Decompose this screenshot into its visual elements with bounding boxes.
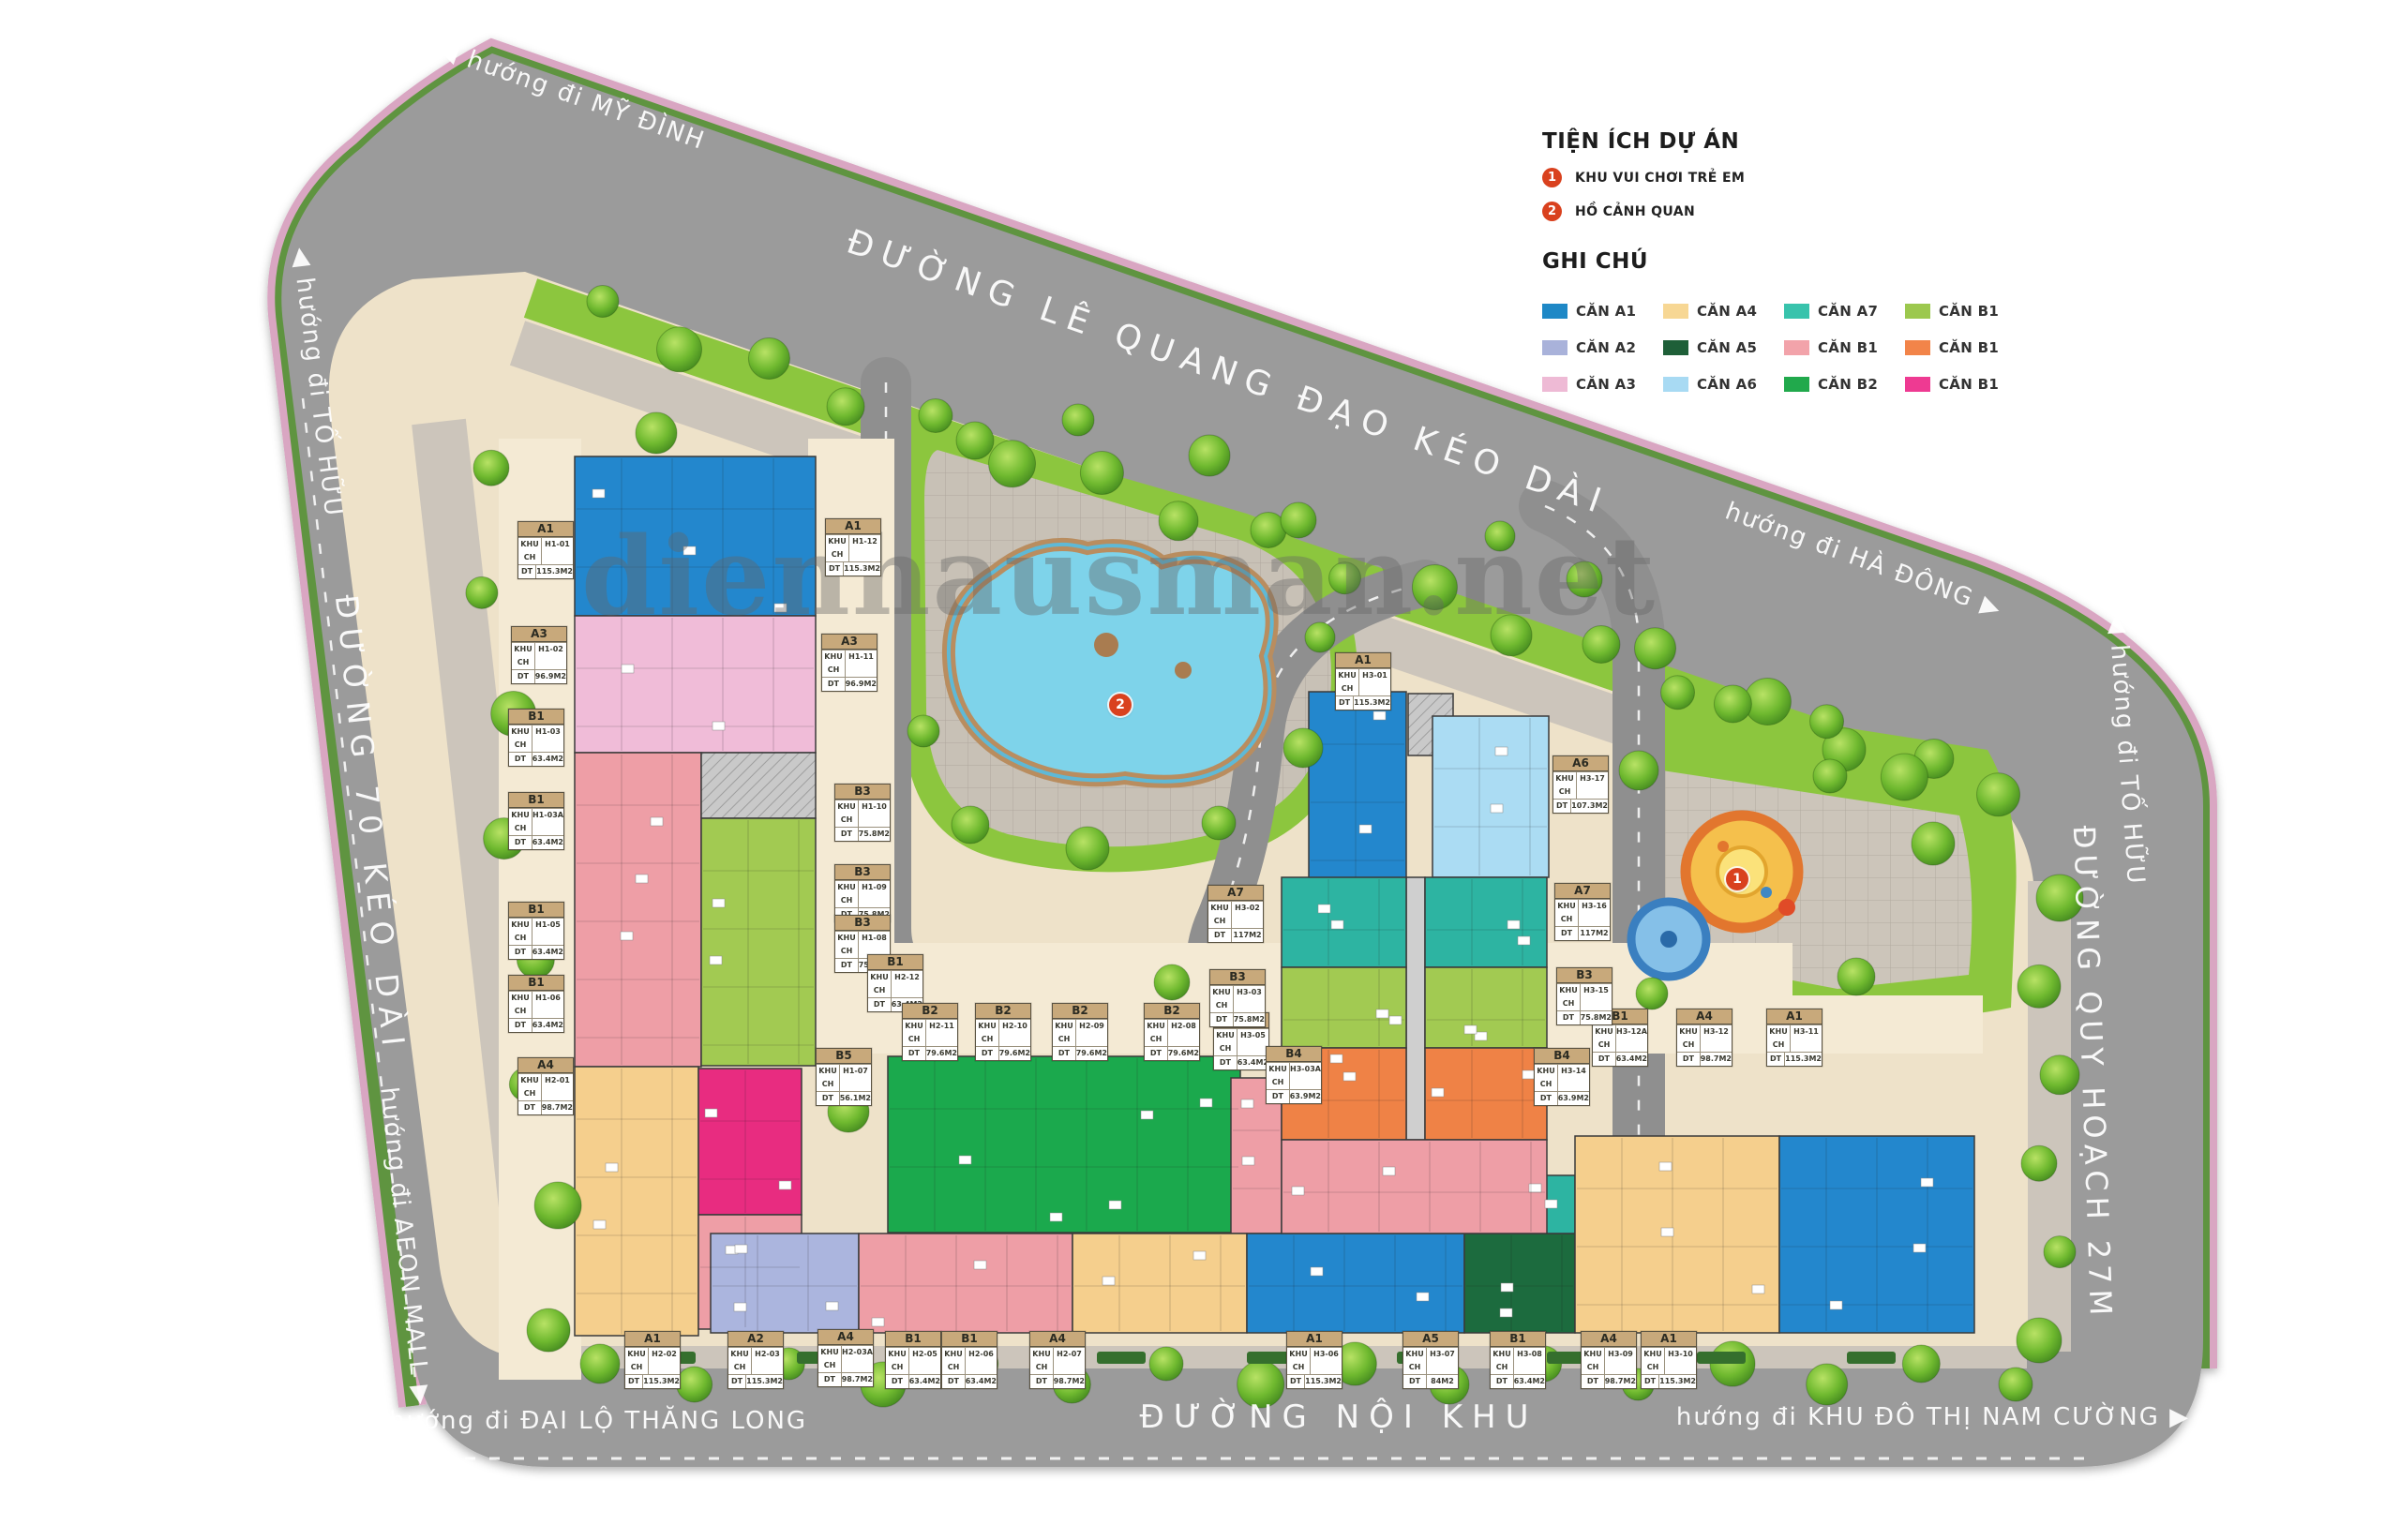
building-block-a6[interactable]: [1432, 716, 1549, 877]
unit-plate-dt-label: DT: [818, 1373, 842, 1386]
furniture-mark: [606, 1163, 618, 1172]
furniture-mark: [1501, 1283, 1513, 1292]
furniture-mark: [705, 1109, 717, 1117]
unit-plate-type: B2: [1145, 1004, 1199, 1019]
unit-plate-khu-label: KHU CH: [1555, 900, 1579, 926]
unit-plate-khu-value: H2-12: [892, 971, 922, 997]
furniture-mark: [826, 1302, 838, 1310]
building-block-a4[interactable]: [1575, 1136, 1779, 1333]
unit-plate-dt-label: DT: [1535, 1092, 1558, 1105]
unit-plate-khu-label: KHU CH: [1642, 1348, 1665, 1374]
direction-nam-cuong: hướng đi KHU ĐÔ THỊ NAM CƯỜNG ▶: [1676, 1403, 2190, 1431]
unit-plate-dt-label: DT: [822, 678, 846, 691]
unit-plate-khu-label: KHU CH: [1336, 669, 1359, 695]
unit-plate-type: B4: [1535, 1049, 1589, 1064]
unit-plate-dt-label: DT: [826, 562, 844, 576]
unit-plate-dt-label: DT: [1642, 1375, 1659, 1388]
unit-plate[interactable]: B2 KHU CHH2-11 DT79.6M2: [902, 1003, 958, 1061]
tree-icon: [919, 398, 952, 432]
unit-type-label: CĂN A6: [1697, 376, 1757, 393]
unit-plate-khu-value: H3-03: [1234, 986, 1265, 1012]
legend-unit-item: CĂN A4: [1663, 303, 1784, 320]
unit-plate-khu-value: H1-01: [542, 538, 573, 564]
unit-plate[interactable]: B2 KHU CHH2-09 DT79.6M2: [1052, 1003, 1108, 1061]
unit-plate[interactable]: A4 KHU CHH3-12 DT98.7M2: [1676, 1009, 1732, 1067]
unit-plate[interactable]: B3 KHU CHH1-09 DT75.8M2: [834, 864, 891, 922]
unit-color-swatch: [1663, 377, 1688, 392]
legend-unit-item: CĂN B1: [1905, 303, 2026, 320]
furniture-mark: [1921, 1178, 1933, 1187]
tree-icon: [636, 412, 677, 454]
direction-dai-lo-thang-long: ◀ hướng đi ĐẠI LỘ THĂNG LONG: [359, 1407, 807, 1435]
furniture-mark: [1376, 1009, 1388, 1018]
furniture-mark: [1200, 1099, 1212, 1107]
unit-plate-type: B1: [942, 1332, 997, 1347]
unit-plate-type: A1: [1336, 653, 1390, 668]
unit-plate-type: A3: [822, 635, 877, 650]
unit-plate-dt-value: 63.4M2: [532, 836, 563, 849]
unit-plate-type: B1: [1491, 1332, 1545, 1347]
unit-plate-dt-label: DT: [1145, 1047, 1168, 1060]
unit-plate-khu-label: KHU CH: [903, 1020, 926, 1046]
unit-plate-type: A4: [818, 1330, 873, 1345]
tree-icon: [1813, 759, 1847, 793]
unit-type-label: CĂN B1: [1939, 376, 1999, 393]
unit-plate-khu-value: H3-11: [1791, 1025, 1822, 1052]
building-block-b1[interactable]: [1282, 1140, 1547, 1233]
unit-plate[interactable]: A7 KHU CHH3-16 DT117M2: [1554, 883, 1611, 941]
unit-plate-dt-value: 63.4M2: [532, 753, 563, 766]
unit-plate-dt-label: DT: [509, 1019, 532, 1032]
tree-icon: [2021, 1145, 2057, 1181]
tree-icon: [1619, 751, 1658, 790]
unit-plate-khu-label: KHU CH: [518, 1074, 542, 1100]
tree-icon: [580, 1344, 620, 1383]
unit-plate-khu-label: KHU CH: [512, 643, 535, 669]
unit-plate-dt-label: DT: [1336, 696, 1354, 710]
tree-icon: [2017, 964, 2061, 1008]
unit-plate-khu-value: H3-14: [1558, 1065, 1589, 1091]
furniture-mark: [1383, 1167, 1395, 1175]
unit-plate-type: A4: [1582, 1332, 1636, 1347]
unit-plate[interactable]: A5 KHU CHH3-07 DT84M2: [1402, 1331, 1459, 1389]
unit-plate-dt-value: 63.4M2: [1237, 1056, 1268, 1069]
unit-color-swatch: [1663, 340, 1688, 355]
unit-plate[interactable]: A2 KHU CHH2-03 DT115.3M2: [727, 1331, 784, 1389]
tree-icon: [534, 1182, 581, 1229]
building-block-a1[interactable]: [1309, 692, 1406, 879]
unit-color-swatch: [1542, 377, 1567, 392]
furniture-mark: [1432, 1088, 1444, 1097]
unit-plate-dt-value: 98.7M2: [842, 1373, 873, 1386]
tree-icon: [1807, 1364, 1848, 1405]
unit-plate-type: A4: [1030, 1332, 1085, 1347]
tree-icon: [1714, 685, 1751, 723]
building-block-b3[interactable]: [1282, 967, 1406, 1048]
unit-plate-khu-value: H3-02: [1232, 902, 1263, 928]
unit-plate-dt-value: 63.4M2: [532, 1019, 563, 1032]
unit-plate-khu-value: H3-15: [1581, 984, 1612, 1010]
unit-plate-khu-label: KHU CH: [518, 538, 542, 564]
unit-plate-dt-value: 115.3M2: [1659, 1375, 1696, 1388]
furniture-mark: [1659, 1162, 1672, 1171]
legend-unit-item: CĂN A3: [1542, 376, 1663, 393]
tree-icon: [956, 422, 994, 459]
unit-plate[interactable]: A7 KHU CHH3-02 DT117M2: [1207, 885, 1264, 943]
legend-amenity-item: 1 KHU VUI CHƠI TRẺ EM: [1542, 168, 2026, 187]
unit-plate-type: A7: [1208, 886, 1263, 901]
legend-amenities: 1 KHU VUI CHƠI TRẺ EM 2 HỒ CẢNH QUAN: [1542, 168, 2026, 221]
furniture-mark: [651, 817, 663, 826]
unit-plate-dt-value: 115.3M2: [1785, 1053, 1822, 1066]
tree-icon: [587, 285, 619, 317]
unit-plate-khu-value: H2-05: [909, 1348, 940, 1374]
legend-amenity-item: 2 HỒ CẢNH QUAN: [1542, 202, 2026, 221]
unit-color-swatch: [1542, 340, 1567, 355]
unit-plate[interactable]: B2 KHU CHH2-10 DT79.6M2: [975, 1003, 1031, 1061]
unit-plate-khu-label: KHU CH: [1214, 1029, 1237, 1055]
unit-plate-khu-value: H3-12: [1701, 1025, 1732, 1052]
unit-plate[interactable]: B1 KHU CHH3-08 DT63.4M2: [1490, 1331, 1546, 1389]
building-block-a1[interactable]: [1247, 1233, 1464, 1333]
unit-plate-khu-value: H1-03: [532, 725, 563, 752]
unit-plate-dt-value: 63.4M2: [909, 1375, 940, 1388]
tree-icon: [1977, 773, 2020, 816]
unit-plate-dt-label: DT: [868, 998, 892, 1011]
unit-plate-dt-label: DT: [509, 836, 532, 849]
hedge: [1847, 1352, 1896, 1364]
tree-icon: [827, 388, 864, 426]
unit-plate[interactable]: A4 KHU CHH2-03A DT98.7M2: [817, 1329, 874, 1387]
unit-plate-dt-label: DT: [1030, 1375, 1054, 1388]
unit-plate-khu-label: KHU CH: [509, 725, 532, 752]
unit-plate[interactable]: A1 KHU CHH3-10 DT115.3M2: [1641, 1331, 1697, 1389]
unit-plate-khu-label: KHU CH: [835, 800, 859, 827]
unit-plate-khu-label: KHU CH: [1267, 1063, 1290, 1089]
unit-plate-khu-label: KHU CH: [1210, 986, 1234, 1012]
unit-plate-khu-value: H1-03A: [532, 809, 563, 835]
unit-plate-khu-value: H2-09: [1076, 1020, 1107, 1046]
unit-plate-khu-label: KHU CH: [1582, 1348, 1605, 1374]
unit-plate-khu-value: H2-11: [926, 1020, 957, 1046]
legend-unit-item: CĂN A2: [1542, 339, 1663, 356]
unit-plate-dt-value: 115.3M2: [536, 565, 573, 578]
unit-plate[interactable]: B1 KHU CHH1-06 DT63.4M2: [508, 975, 564, 1033]
unit-plate-dt-label: DT: [835, 828, 859, 841]
furniture-mark: [712, 722, 725, 730]
unit-plate[interactable]: A3 KHU CHH1-02 DT96.9M2: [511, 626, 567, 684]
unit-plate-dt-value: 98.7M2: [1605, 1375, 1636, 1388]
furniture-mark: [1661, 1228, 1673, 1236]
unit-plate-dt-value: 96.9M2: [535, 670, 566, 683]
legend-unit-item: CĂN A5: [1663, 339, 1784, 356]
unit-color-swatch: [1784, 340, 1809, 355]
unit-plate[interactable]: B3 KHU CHH3-03 DT75.8M2: [1209, 969, 1266, 1027]
unit-plate-type: A5: [1403, 1332, 1458, 1347]
unit-plate[interactable]: A1 KHU CHH1-01 DT115.3M2: [517, 521, 574, 579]
unit-plate-khu-label: KHU CH: [826, 535, 849, 561]
tree-icon: [1636, 978, 1668, 1009]
unit-plate-khu-label: KHU CH: [886, 1348, 909, 1374]
unit-plate-khu-value: H3-05: [1237, 1029, 1268, 1055]
legend-unit-item: CĂN B1: [1905, 376, 2026, 393]
unit-plate-khu-label: KHU CH: [1491, 1348, 1514, 1374]
unit-plate-dt-value: 115.3M2: [1305, 1375, 1342, 1388]
unit-plate-khu-value: H1-07: [840, 1065, 871, 1091]
furniture-mark: [712, 899, 725, 907]
unit-plate-type: A1: [1642, 1332, 1696, 1347]
unit-plate-dt-value: 98.7M2: [1701, 1053, 1732, 1066]
unit-plate[interactable]: A4 KHU CHH2-01 DT98.7M2: [517, 1057, 574, 1115]
unit-plate[interactable]: A1 KHU CHH3-11 DT115.3M2: [1766, 1009, 1822, 1067]
unit-plate-dt-label: DT: [1553, 800, 1571, 813]
unit-color-swatch: [1905, 304, 1930, 319]
unit-plate-khu-value: H2-06: [966, 1348, 997, 1374]
furniture-mark: [622, 665, 634, 673]
furniture-mark: [710, 956, 722, 964]
unit-plate-khu-value: H1-11: [846, 650, 877, 677]
unit-plate-dt-value: 98.7M2: [1054, 1375, 1085, 1388]
unit-plate-dt-value: 79.6M2: [926, 1047, 957, 1060]
tree-icon: [1154, 964, 1190, 1000]
unit-plate-type: A6: [1553, 756, 1608, 771]
furniture-mark: [734, 1303, 746, 1311]
tree-icon: [952, 806, 989, 844]
unit-plate-khu-value: H3-07: [1427, 1348, 1458, 1374]
furniture-mark: [1518, 936, 1530, 945]
unit-plate-type: B1: [509, 710, 563, 725]
unit-plate-dt-label: DT: [728, 1375, 746, 1388]
unit-plate-dt-label: DT: [625, 1375, 643, 1388]
unit-type-label: CĂN A3: [1576, 376, 1636, 393]
tree-icon: [657, 327, 702, 372]
tree-icon: [1080, 451, 1123, 494]
unit-plate-type: A3: [512, 627, 566, 642]
unit-plate-type: B5: [817, 1049, 871, 1064]
unit-type-label: CĂN A1: [1576, 303, 1636, 320]
furniture-mark: [636, 875, 648, 883]
unit-plate-khu-value: H1-05: [532, 919, 563, 945]
furniture-mark: [1389, 1016, 1402, 1024]
unit-plate[interactable]: A1 KHU CHH2-02 DT115.3M2: [624, 1331, 681, 1389]
unit-plate-dt-value: 117M2: [1232, 929, 1263, 942]
unit-plate[interactable]: A4 KHU CHH2-07 DT98.7M2: [1029, 1331, 1086, 1389]
tree-icon: [466, 576, 498, 608]
unit-plate-type: B1: [509, 793, 563, 808]
unit-plate[interactable]: A3 KHU CHH1-11 DT96.9M2: [821, 634, 877, 692]
furniture-mark: [1464, 1025, 1477, 1034]
amenity-number-badge: 1: [1542, 168, 1562, 187]
unit-plate[interactable]: B2 KHU CHH2-08 DT79.6M2: [1144, 1003, 1200, 1061]
unit-plate-type: B1: [509, 903, 563, 918]
unit-plate[interactable]: A1 KHU CHH3-01 DT115.3M2: [1335, 652, 1391, 710]
amenity-marker[interactable]: 1: [1726, 868, 1748, 890]
unit-plate[interactable]: B1 KHU CHH2-06 DT63.4M2: [941, 1331, 997, 1389]
unit-plate-dt-value: 63.4M2: [966, 1375, 997, 1388]
building-block-b1[interactable]: [575, 753, 701, 1067]
unit-plate-khu-label: KHU CH: [1677, 1025, 1701, 1052]
unit-plate-khu-value: H3-06: [1311, 1348, 1342, 1374]
unit-plate[interactable]: B5 KHU CHH1-07 DT56.1M2: [816, 1048, 872, 1106]
unit-plate[interactable]: A1 KHU CHH1-12 DT115.3M2: [825, 518, 881, 576]
unit-plate-khu-value: H1-10: [859, 800, 890, 827]
tree-icon: [1062, 404, 1094, 436]
legend-unit-item: CĂN A7: [1784, 303, 1905, 320]
furniture-mark: [1141, 1111, 1153, 1119]
amenity-label: KHU VUI CHƠI TRẺ EM: [1575, 171, 1745, 186]
unit-type-label: CĂN A4: [1697, 303, 1757, 320]
tree-icon: [1837, 958, 1875, 995]
unit-plate-dt-value: 63.4M2: [1616, 1053, 1647, 1066]
unit-plate-type: B2: [976, 1004, 1030, 1019]
hedge: [1697, 1352, 1746, 1364]
unit-plate-type: B2: [903, 1004, 957, 1019]
unit-plate-dt-value: 115.3M2: [746, 1375, 783, 1388]
master-plan-canvas: dienhausman.net ĐƯỜNG LÊ QUANG ĐẠO KÉO D…: [0, 0, 2400, 1540]
unit-plate-dt-label: DT: [1593, 1053, 1616, 1066]
unit-plate-khu-label: KHU CH: [1535, 1065, 1558, 1091]
unit-plate-khu-label: KHU CH: [1767, 1025, 1791, 1052]
unit-plate[interactable]: B1 KHU CHH1-03 DT63.4M2: [508, 709, 564, 767]
unit-plate-dt-label: DT: [518, 565, 536, 578]
unit-plate-dt-value: 98.7M2: [542, 1101, 573, 1114]
unit-plate-dt-label: DT: [509, 753, 532, 766]
unit-plate-type: A1: [1767, 1009, 1822, 1024]
unit-plate-dt-label: DT: [1208, 929, 1232, 942]
lake-island: [1175, 662, 1192, 679]
tree-icon: [473, 450, 509, 486]
unit-plate-dt-label: DT: [1287, 1375, 1305, 1388]
tree-icon: [1202, 806, 1236, 840]
unit-plate[interactable]: A6 KHU CHH3-17 DT107.3M2: [1552, 755, 1609, 814]
furniture-mark: [1495, 747, 1507, 755]
unit-plate[interactable]: B1 KHU CHH1-05 DT63.4M2: [508, 902, 564, 960]
tree-icon: [1661, 676, 1695, 710]
unit-plate[interactable]: B3 KHU CHH1-10 DT75.8M2: [834, 784, 891, 842]
unit-plate-khu-value: H3-10: [1665, 1348, 1696, 1374]
building-block-b5[interactable]: [698, 1069, 802, 1215]
unit-plate-dt-value: 115.3M2: [844, 562, 880, 576]
unit-plate-dt-value: 107.3M2: [1571, 800, 1608, 813]
unit-plate-khu-label: KHU CH: [1553, 772, 1577, 799]
building-block-a5[interactable]: [1464, 1233, 1575, 1333]
unit-plate-type: B3: [835, 916, 890, 931]
furniture-mark: [1545, 1200, 1557, 1208]
unit-plate-type: A1: [1287, 1332, 1342, 1347]
building-block-a7[interactable]: [1282, 877, 1406, 967]
furniture-mark: [1830, 1301, 1842, 1309]
building-block-a4[interactable]: [575, 1067, 698, 1336]
furniture-mark: [1050, 1213, 1062, 1221]
unit-type-label: CĂN A7: [1818, 303, 1878, 320]
unit-plate-type: A4: [518, 1058, 573, 1073]
building-block-b1[interactable]: [859, 1233, 1072, 1333]
unit-plate-dt-label: DT: [1267, 1090, 1290, 1103]
unit-plate-khu-label: KHU CH: [822, 650, 846, 677]
amenity-number-badge: 2: [1542, 202, 1562, 221]
unit-plate-dt-label: DT: [509, 946, 532, 959]
unit-plate-type: B3: [1557, 968, 1612, 983]
unit-plate-khu-value: H1-02: [535, 643, 566, 669]
furniture-mark: [1102, 1277, 1115, 1285]
furniture-mark: [1292, 1187, 1304, 1195]
furniture-mark: [1318, 905, 1330, 913]
unit-plate-dt-label: DT: [1210, 1013, 1234, 1026]
unit-plate-dt-label: DT: [1214, 1056, 1237, 1069]
unit-type-label: CĂN B2: [1818, 376, 1878, 393]
unit-plate-type: A1: [625, 1332, 680, 1347]
unit-type-label: CĂN B1: [1818, 339, 1878, 356]
unit-plate[interactable]: B1 KHU CHH1-03A DT63.4M2: [508, 792, 564, 850]
unit-type-label: CĂN A2: [1576, 339, 1636, 356]
unit-plate-dt-label: DT: [886, 1375, 909, 1388]
unit-plate-type: B1: [509, 976, 563, 991]
unit-plate-dt-label: DT: [1767, 1053, 1785, 1066]
unit-plate[interactable]: B4 KHU CHH3-03A DT63.9M2: [1266, 1046, 1322, 1104]
unit-plate-dt-value: 63.4M2: [532, 946, 563, 959]
tree-icon: [1912, 822, 1955, 865]
unit-plate-dt-value: 56.1M2: [840, 1092, 871, 1105]
unit-plate-dt-label: DT: [1403, 1375, 1427, 1388]
furniture-mark: [1491, 804, 1503, 813]
unit-plate-dt-value: 115.3M2: [1354, 696, 1390, 710]
unit-plate-khu-label: KHU CH: [509, 992, 532, 1018]
legend-unit-item: CĂN B1: [1784, 339, 1905, 356]
unit-plate-type: B2: [1053, 1004, 1107, 1019]
unit-plate-khu-label: KHU CH: [625, 1348, 649, 1374]
unit-plate-dt-value: 75.8M2: [1234, 1013, 1265, 1026]
furniture-mark: [1417, 1293, 1429, 1301]
unit-plate-dt-value: 63.9M2: [1290, 1090, 1321, 1103]
tree-icon: [748, 337, 789, 379]
furniture-mark: [1241, 1099, 1253, 1108]
tree-icon: [677, 1367, 712, 1402]
unit-plate[interactable]: B4 KHU CHH3-14 DT63.9M2: [1534, 1048, 1590, 1106]
furniture-mark: [592, 489, 605, 498]
unit-plate-khu-label: KHU CH: [1145, 1020, 1168, 1046]
amenity-marker[interactable]: 2: [1109, 694, 1132, 716]
unit-plate[interactable]: A4 KHU CHH3-09 DT98.7M2: [1581, 1331, 1637, 1389]
unit-plate-khu-label: KHU CH: [817, 1065, 840, 1091]
unit-plate-khu-label: KHU CH: [1557, 984, 1581, 1010]
unit-plate[interactable]: B3 KHU CHH3-15 DT75.8M2: [1556, 967, 1612, 1025]
unit-plate-khu-value: H3-09: [1605, 1348, 1636, 1374]
building-block-a7[interactable]: [1425, 877, 1547, 967]
unit-plate[interactable]: A1 KHU CHH3-06 DT115.3M2: [1286, 1331, 1342, 1389]
unit-plate-dt-value: 63.9M2: [1558, 1092, 1589, 1105]
legend-unit-item: CĂN B1: [1905, 339, 2026, 356]
unit-plate-dt-value: 63.4M2: [1514, 1375, 1545, 1388]
unit-plate-khu-value: H3-03A: [1290, 1063, 1321, 1089]
unit-plate-dt-label: DT: [1582, 1375, 1605, 1388]
furniture-mark: [1343, 1072, 1356, 1081]
tree-icon: [1881, 754, 1927, 800]
hedge: [1097, 1352, 1146, 1364]
legend-amenities-title: TIỆN ÍCH DỰ ÁN: [1542, 129, 2026, 154]
unit-plate-khu-value: H2-08: [1168, 1020, 1199, 1046]
furniture-mark: [1242, 1157, 1254, 1165]
unit-color-swatch: [1905, 340, 1930, 355]
tree-icon: [1149, 1347, 1183, 1381]
unit-plate-khu-value: H2-01: [542, 1074, 573, 1100]
unit-plate[interactable]: B1 KHU CHH2-05 DT63.4M2: [885, 1331, 941, 1389]
unit-plate-dt-value: 117M2: [1579, 927, 1610, 940]
unit-plate-khu-label: KHU CH: [1030, 1348, 1054, 1374]
furniture-mark: [1913, 1244, 1926, 1252]
unit-type-label: CĂN B1: [1939, 339, 1999, 356]
road-noi-khu: ĐƯỜNG NỘI KHU: [1140, 1398, 1538, 1436]
tree-icon: [1283, 728, 1323, 768]
